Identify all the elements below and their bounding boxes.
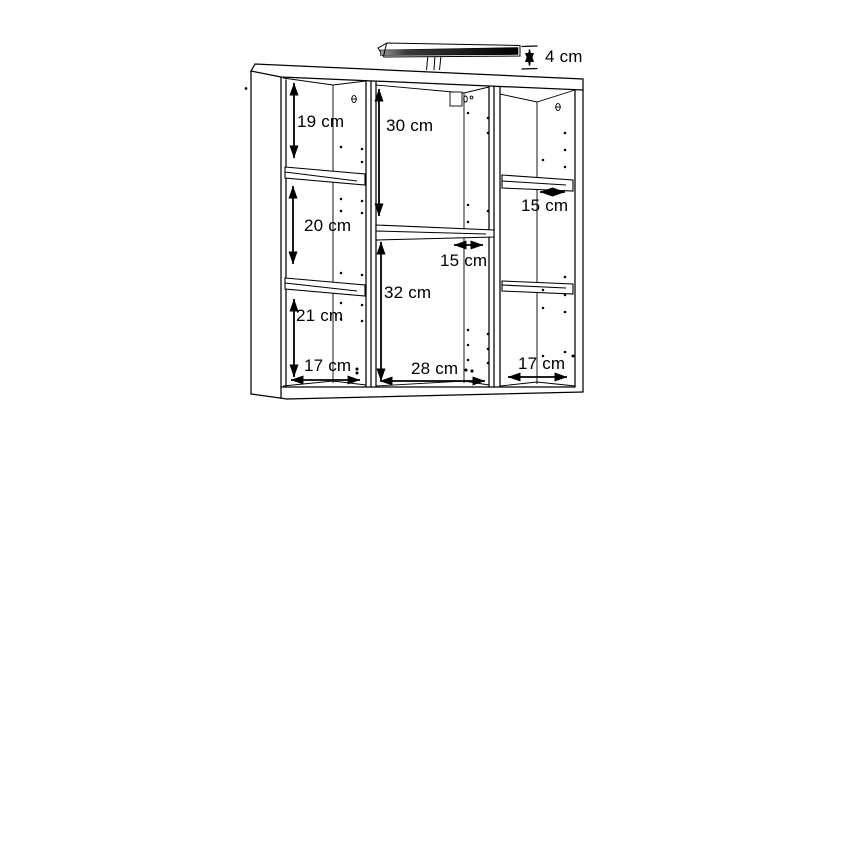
cabinet-line-drawing — [0, 0, 868, 868]
shelf-pin-hole — [340, 198, 343, 201]
dimension-label-light-height: 4 cm — [545, 47, 583, 67]
light-fixture — [378, 43, 520, 70]
shelf-pin-hole — [340, 146, 343, 149]
shelf-pin-hole — [564, 311, 567, 314]
shelf-pin-hole — [564, 351, 567, 354]
shelf-pin-hole — [361, 200, 364, 203]
shelf-pin-hole — [361, 212, 364, 215]
right-shelf-upper — [502, 175, 573, 191]
shelf-pin-hole — [564, 276, 567, 279]
shelf-pin-hole — [361, 304, 364, 307]
right-shelf-lower — [502, 281, 573, 294]
shelf-pin-hole — [542, 289, 545, 292]
left-shelf-upper — [285, 167, 365, 185]
shelf-pin-hole — [542, 159, 545, 162]
shelf-pin-hole — [361, 274, 364, 277]
shelf-pin-hole — [487, 117, 490, 120]
shelf-pin-hole — [467, 112, 470, 115]
dimension-label-right-width: 17 cm — [518, 354, 565, 374]
shelf-pin-hole — [340, 210, 343, 213]
dim-arrow-4cm — [522, 46, 538, 69]
dimension-label-left-top: 19 cm — [297, 112, 344, 132]
dimension-label-center-bottom: 32 cm — [384, 283, 431, 303]
shelf-pin-hole — [542, 307, 545, 310]
shelf-pin-hole — [487, 362, 490, 365]
dimension-label-right-shelf-depth: 15 cm — [521, 196, 568, 216]
shelf-pin-hole — [340, 272, 343, 275]
light-bar — [378, 43, 520, 57]
shelf-pin-hole — [564, 149, 567, 152]
shelf-pin-hole — [467, 221, 470, 224]
shelf-pin-hole — [467, 344, 470, 347]
shelf-pin-hole — [564, 132, 567, 135]
dimension-label-center-width: 28 cm — [411, 359, 458, 379]
shelf-pin-hole — [487, 210, 490, 213]
shelf-pin-hole — [487, 333, 490, 336]
shelf-pin-hole — [487, 132, 490, 135]
shelf-pin-hole — [487, 348, 490, 351]
shelf-pin-hole — [467, 204, 470, 207]
dimension-label-left-bottom: 21 cm — [296, 306, 343, 326]
shelf-pin-hole — [467, 359, 470, 362]
dimension-drawing-canvas: 4 cm 19 cm 30 cm 20 cm 15 cm 15 cm 32 cm… — [0, 0, 868, 868]
hinge-cup-mark — [450, 92, 462, 106]
top-panel — [251, 64, 583, 90]
dowel-mark-center — [470, 96, 473, 99]
dimension-label-center-shelf-depth: 15 cm — [440, 251, 487, 271]
shelf-pin-hole — [564, 294, 567, 297]
shelf-pin-hole — [361, 161, 364, 164]
left-shelf-lower — [285, 278, 365, 296]
center-shelf — [376, 225, 494, 240]
shelf-pin-hole — [361, 148, 364, 151]
shelf-pin-hole — [361, 320, 364, 323]
shelf-pin-hole — [340, 302, 343, 305]
dimension-label-left-middle: 20 cm — [304, 216, 351, 236]
shelf-pin-hole — [564, 166, 567, 169]
dimension-label-center-top: 30 cm — [386, 116, 433, 136]
shelf-pin-hole — [467, 329, 470, 332]
dimension-label-left-width: 17 cm — [304, 356, 351, 376]
